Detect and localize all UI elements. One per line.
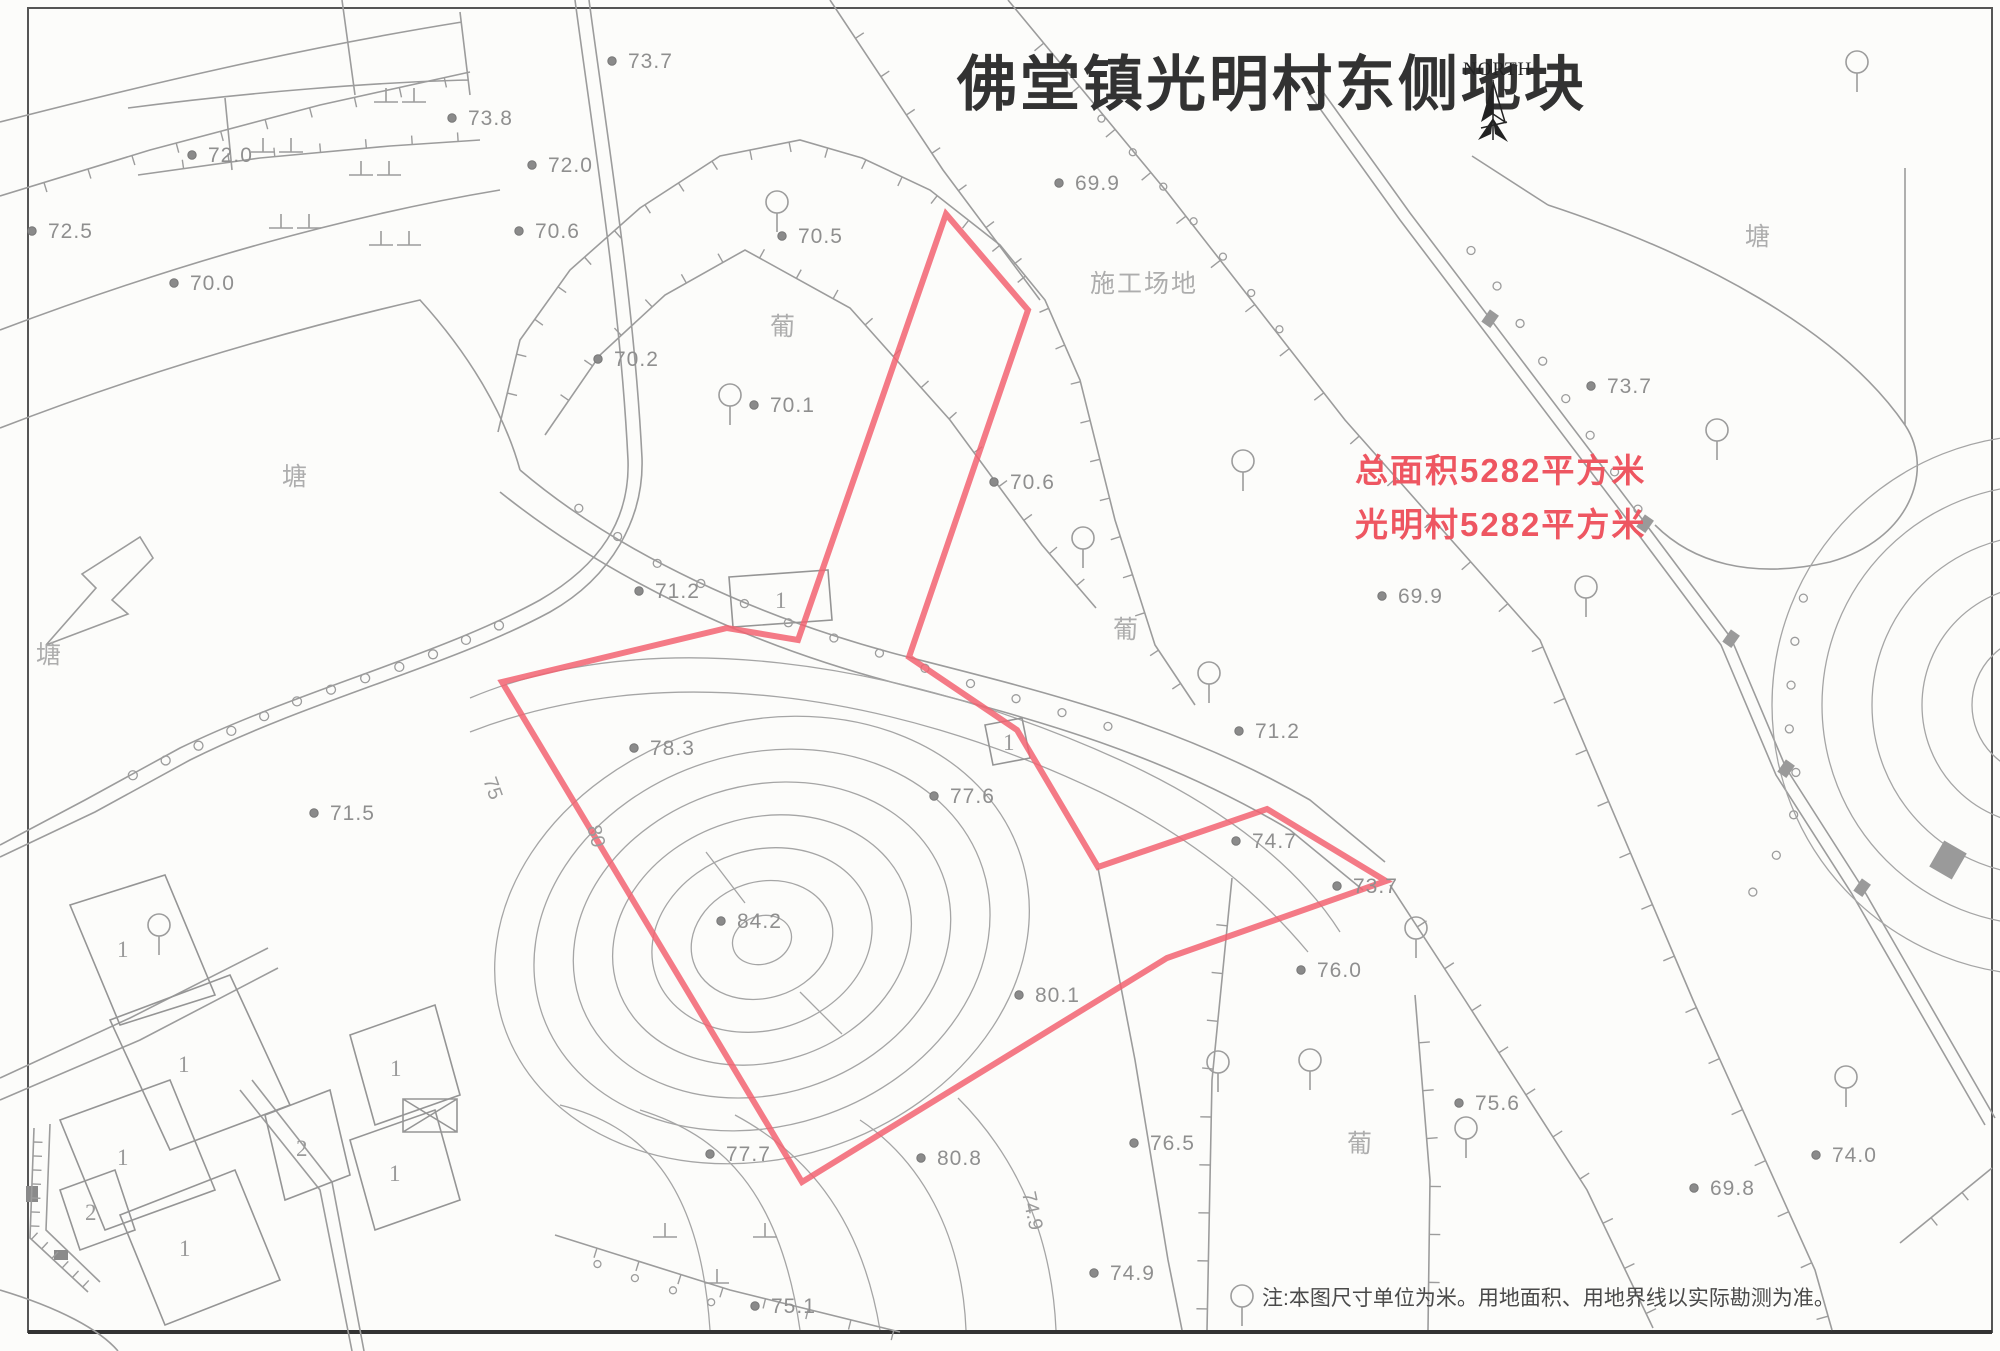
land-type-label: 葡: [770, 313, 797, 341]
spot-elevation: 72.5: [28, 220, 93, 243]
land-type-label: 葡: [1347, 1130, 1374, 1158]
tree-icon: [766, 191, 788, 232]
dry-field-icon: [374, 88, 398, 102]
contours-right-hill: [1772, 435, 2000, 975]
spot-elevation-value: 69.8: [1710, 1177, 1755, 1200]
building-number: 1: [390, 1056, 402, 1081]
spot-elevation: 70.6: [515, 220, 580, 243]
dry-field-icon: [349, 161, 373, 175]
spot-elevation: 74.0: [1812, 1144, 1877, 1167]
spot-elevation-value: 70.1: [770, 394, 815, 417]
tree-icon: [1231, 1285, 1253, 1326]
tree-icon: [1575, 576, 1597, 617]
tree-icon: [1299, 1049, 1321, 1090]
spot-elevation: 71.5: [310, 802, 375, 825]
spot-elevation-value: 70.6: [535, 220, 580, 243]
spot-elevation-value: 77.7: [726, 1143, 771, 1166]
spot-elevation: 77.6: [930, 785, 995, 808]
spot-elevation-value: 77.6: [950, 785, 995, 808]
spot-elevation-value: 73.7: [1607, 375, 1652, 398]
tree-icon: [1232, 450, 1254, 491]
spot-elevation-value: 75.1: [771, 1295, 816, 1318]
village-area-text: 光明村5282平方米: [1355, 506, 1646, 543]
spot-elevation-value: 80.8: [937, 1147, 982, 1170]
road-left-parallel: [0, 0, 642, 857]
building-layer: [60, 570, 1030, 1325]
village-roads: [0, 948, 364, 1351]
spot-elevation: 74.7: [1232, 830, 1297, 853]
spot-elevation: 80.8: [917, 1147, 982, 1170]
arrow-feature: [46, 537, 153, 645]
survey-map-canvas: 73.773.872.072.070.672.570.070.569.970.2…: [0, 0, 2000, 1351]
spot-elevation: 70.6: [990, 471, 1055, 494]
spot-elevation: 73.7: [608, 50, 673, 73]
land-type-label: 葡: [1113, 616, 1140, 644]
spot-elevation: 75.6: [1455, 1092, 1520, 1115]
tree-icon: [1198, 662, 1220, 703]
spot-elevation: 76.0: [1297, 959, 1362, 982]
dry-field-icon: [377, 161, 401, 175]
spot-elevation-value: 71.5: [330, 802, 375, 825]
total-area-text: 总面积5282平方米: [1355, 452, 1646, 489]
land-type-label-layer: 塘塘塘施工场地葡葡葡: [36, 223, 1772, 1158]
spot-elevation: 76.5: [1130, 1132, 1195, 1155]
tree-row-dot-layer: [128, 115, 1807, 1306]
map-note: 注:本图尺寸单位为米。用地面积、用地界线以实际勘测为准。: [1262, 1287, 1835, 1310]
dry-field-icon: [397, 231, 421, 245]
building-number: 1: [178, 1052, 190, 1077]
spot-elevation: 75.1: [751, 1295, 816, 1318]
spot-elevation-value: 74.9: [1110, 1262, 1155, 1285]
spot-elevation: 69.9: [1055, 172, 1120, 195]
dry-field-icon: [251, 138, 275, 152]
shed-with-cross: [403, 1099, 457, 1132]
building-number: 1: [389, 1161, 401, 1186]
building-number: 1: [117, 937, 129, 962]
spot-elevation: 73.8: [448, 107, 513, 130]
spot-elevation: 71.2: [635, 580, 700, 603]
tree-icon: [1846, 51, 1868, 92]
dry-field-icon: [653, 1223, 677, 1237]
spot-elevation-value: 71.2: [655, 580, 700, 603]
rotated-elevation-label: 80: [582, 823, 609, 850]
spot-elevation-value: 73.7: [628, 50, 673, 73]
building-number: 2: [296, 1136, 308, 1161]
spot-elevation: 70.0: [170, 272, 235, 295]
spot-elevation-value: 78.3: [650, 737, 695, 760]
tree-icon: [1455, 1117, 1477, 1158]
building-number: 1: [117, 1145, 129, 1170]
spot-elevation: 84.2: [717, 910, 782, 933]
building-number: 1: [179, 1236, 191, 1261]
north-label: NORTH: [1463, 59, 1532, 80]
culvert-layer: [1481, 309, 1966, 897]
spot-elevation-value: 74.7: [1252, 830, 1297, 853]
dry-field-icon: [269, 214, 293, 228]
spot-elevation-value: 76.0: [1317, 959, 1362, 982]
spot-elevation: 69.9: [1378, 585, 1443, 608]
tree-icon: [1207, 1051, 1229, 1092]
map-frame: [28, 8, 1992, 1332]
spot-elevation: 80.1: [1015, 984, 1080, 1007]
building-number: 1: [1003, 730, 1015, 755]
land-type-label: 施工场地: [1090, 270, 1198, 298]
spot-elevation-value: 74.0: [1832, 1144, 1877, 1167]
spot-elevation-value: 71.2: [1255, 720, 1300, 743]
land-type-label: 塘: [1745, 223, 1772, 251]
dry-field-icon: [297, 214, 321, 228]
spot-elevation: 73.7: [1587, 375, 1652, 398]
spot-elevation: 74.9: [1090, 1262, 1155, 1285]
building-number-layer: 1112121111: [85, 588, 1015, 1261]
tree-icon: [1706, 419, 1728, 460]
spot-elevation: 69.8: [1690, 1177, 1755, 1200]
spot-elevation-value: 69.9: [1398, 585, 1443, 608]
building-number: 2: [85, 1200, 97, 1225]
tree-icon: [148, 914, 170, 955]
parcel-line-southeast: [1098, 868, 1182, 1330]
tree-icon: [1835, 1066, 1857, 1107]
spot-elevation-value: 76.5: [1150, 1132, 1195, 1155]
spot-elevation-value: 73.7: [1353, 875, 1398, 898]
bridge-symbol: [1929, 841, 1967, 880]
spot-elevation-value: 80.1: [1035, 984, 1080, 1007]
spot-elevation: 70.5: [778, 225, 843, 248]
spot-elevation-value: 69.9: [1075, 172, 1120, 195]
map-sheet: 73.773.872.072.070.672.570.070.569.970.2…: [0, 0, 2000, 1351]
road-left: [0, 0, 628, 845]
land-type-label: 塘: [282, 463, 309, 491]
spot-elevation: 72.0: [528, 154, 593, 177]
rotated-elevation-label: 75: [478, 774, 506, 802]
spot-elevation: 71.2: [1235, 720, 1300, 743]
tree-symbol-layer: [148, 51, 1868, 1326]
building-number: 1: [775, 588, 787, 613]
dry-field-icon: [402, 88, 426, 102]
spot-elevation-value: 73.8: [468, 107, 513, 130]
spot-elevation: 77.7: [706, 1143, 771, 1166]
rotated-elevation-label: 74.9: [1017, 1189, 1047, 1232]
tree-icon: [1072, 527, 1094, 568]
spot-elevation-value: 72.0: [548, 154, 593, 177]
spot-elevation: 70.1: [750, 394, 815, 417]
spot-elevation-value: 72.0: [208, 144, 253, 167]
spot-elevation-value: 72.5: [48, 220, 93, 243]
land-type-label: 塘: [36, 641, 63, 669]
spot-elevation-value: 84.2: [737, 910, 782, 933]
bank-block: [54, 1250, 68, 1260]
spot-elevation: 72.0: [188, 144, 253, 167]
dry-field-icon: [369, 231, 393, 245]
dry-field-icon: [705, 1269, 729, 1283]
spot-elevation-value: 70.0: [190, 272, 235, 295]
spot-elevation-value: 75.6: [1475, 1092, 1520, 1115]
dry-field-icon: [279, 138, 303, 152]
spot-elevation-value: 70.6: [1010, 471, 1055, 494]
spot-elevation-value: 70.2: [614, 348, 659, 371]
spot-elevation-value: 70.5: [798, 225, 843, 248]
tree-icon: [719, 384, 741, 425]
